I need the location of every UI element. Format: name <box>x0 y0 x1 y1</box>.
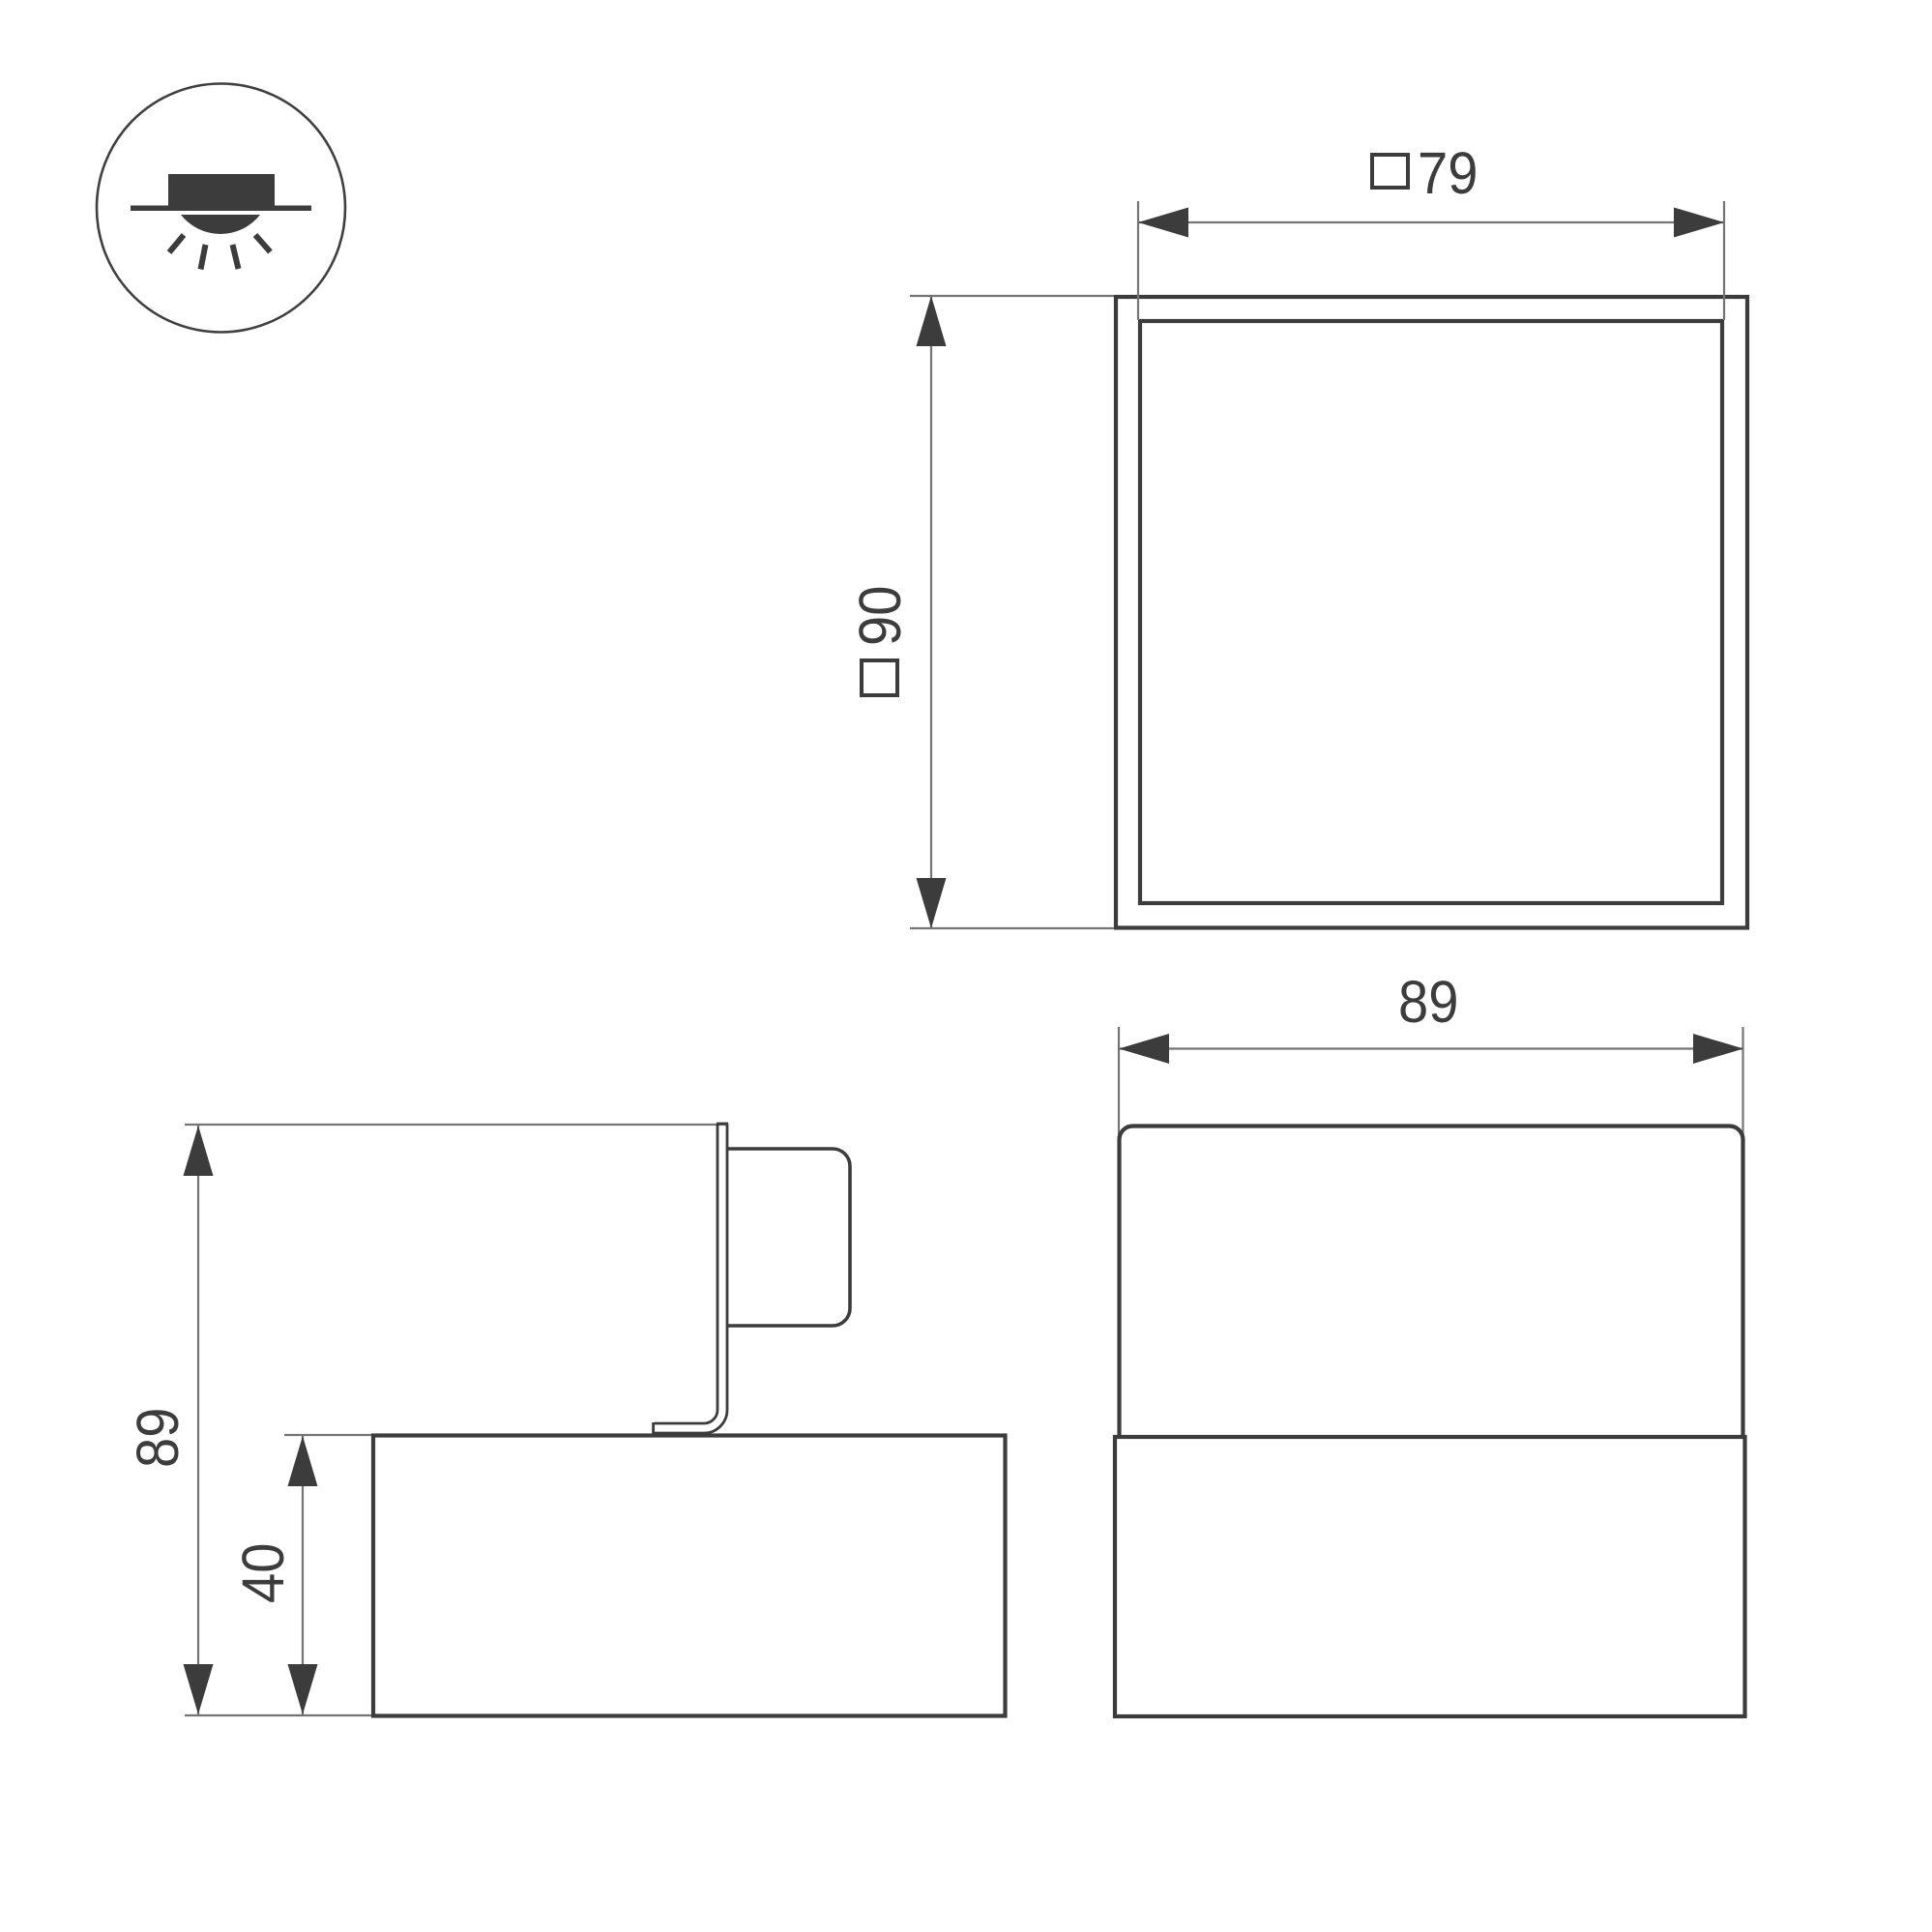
svg-text:40: 40 <box>231 1543 297 1603</box>
svg-text:89: 89 <box>126 1408 191 1468</box>
svg-text:89: 89 <box>1398 970 1458 1036</box>
svg-text:90: 90 <box>848 586 914 646</box>
svg-text:79: 79 <box>1418 141 1478 207</box>
